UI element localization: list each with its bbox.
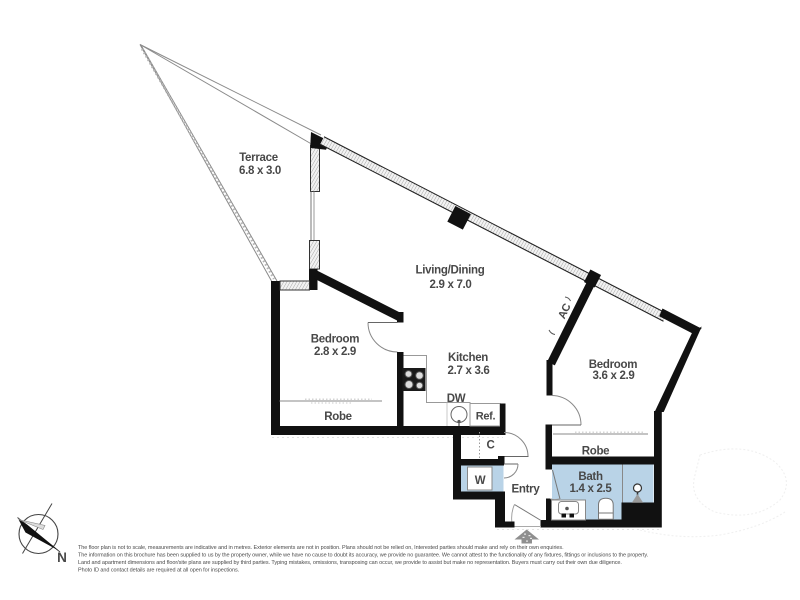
- svg-text:W: W: [475, 475, 486, 487]
- svg-text:3.6 x 2.9: 3.6 x 2.9: [592, 370, 634, 382]
- svg-text:DW: DW: [447, 393, 466, 405]
- svg-text:Kitchen: Kitchen: [448, 352, 488, 364]
- svg-text:Land and apartment dimensions: Land and apartment dimensions and floor/…: [78, 560, 622, 566]
- svg-text:2.7 x 3.6: 2.7 x 3.6: [447, 365, 489, 377]
- svg-text:C: C: [486, 440, 494, 452]
- svg-text:Living/Dining: Living/Dining: [416, 265, 485, 277]
- svg-text:Ref.: Ref.: [476, 411, 496, 423]
- svg-text:Robe: Robe: [324, 411, 352, 423]
- svg-text:Entry: Entry: [512, 484, 541, 496]
- svg-text:Bedroom: Bedroom: [311, 334, 359, 346]
- svg-text:N: N: [57, 550, 67, 565]
- svg-text:Robe: Robe: [582, 446, 610, 458]
- svg-text:2.9 x 7.0: 2.9 x 7.0: [429, 279, 471, 291]
- svg-text:The information on this brochu: The information on this brochure has bee…: [78, 553, 649, 559]
- svg-text:6.8 x 3.0: 6.8 x 3.0: [239, 165, 281, 177]
- svg-text:2.8 x 2.9: 2.8 x 2.9: [314, 346, 356, 358]
- svg-text:Bath: Bath: [578, 471, 603, 483]
- svg-text:Terrace: Terrace: [239, 152, 278, 164]
- svg-text:1.4 x 2.5: 1.4 x 2.5: [569, 483, 612, 495]
- svg-text:Photo ID and contact details a: Photo ID and contact details are require…: [78, 568, 240, 574]
- svg-text:The floor plan is not to scale: The floor plan is not to scale, measurem…: [78, 545, 564, 551]
